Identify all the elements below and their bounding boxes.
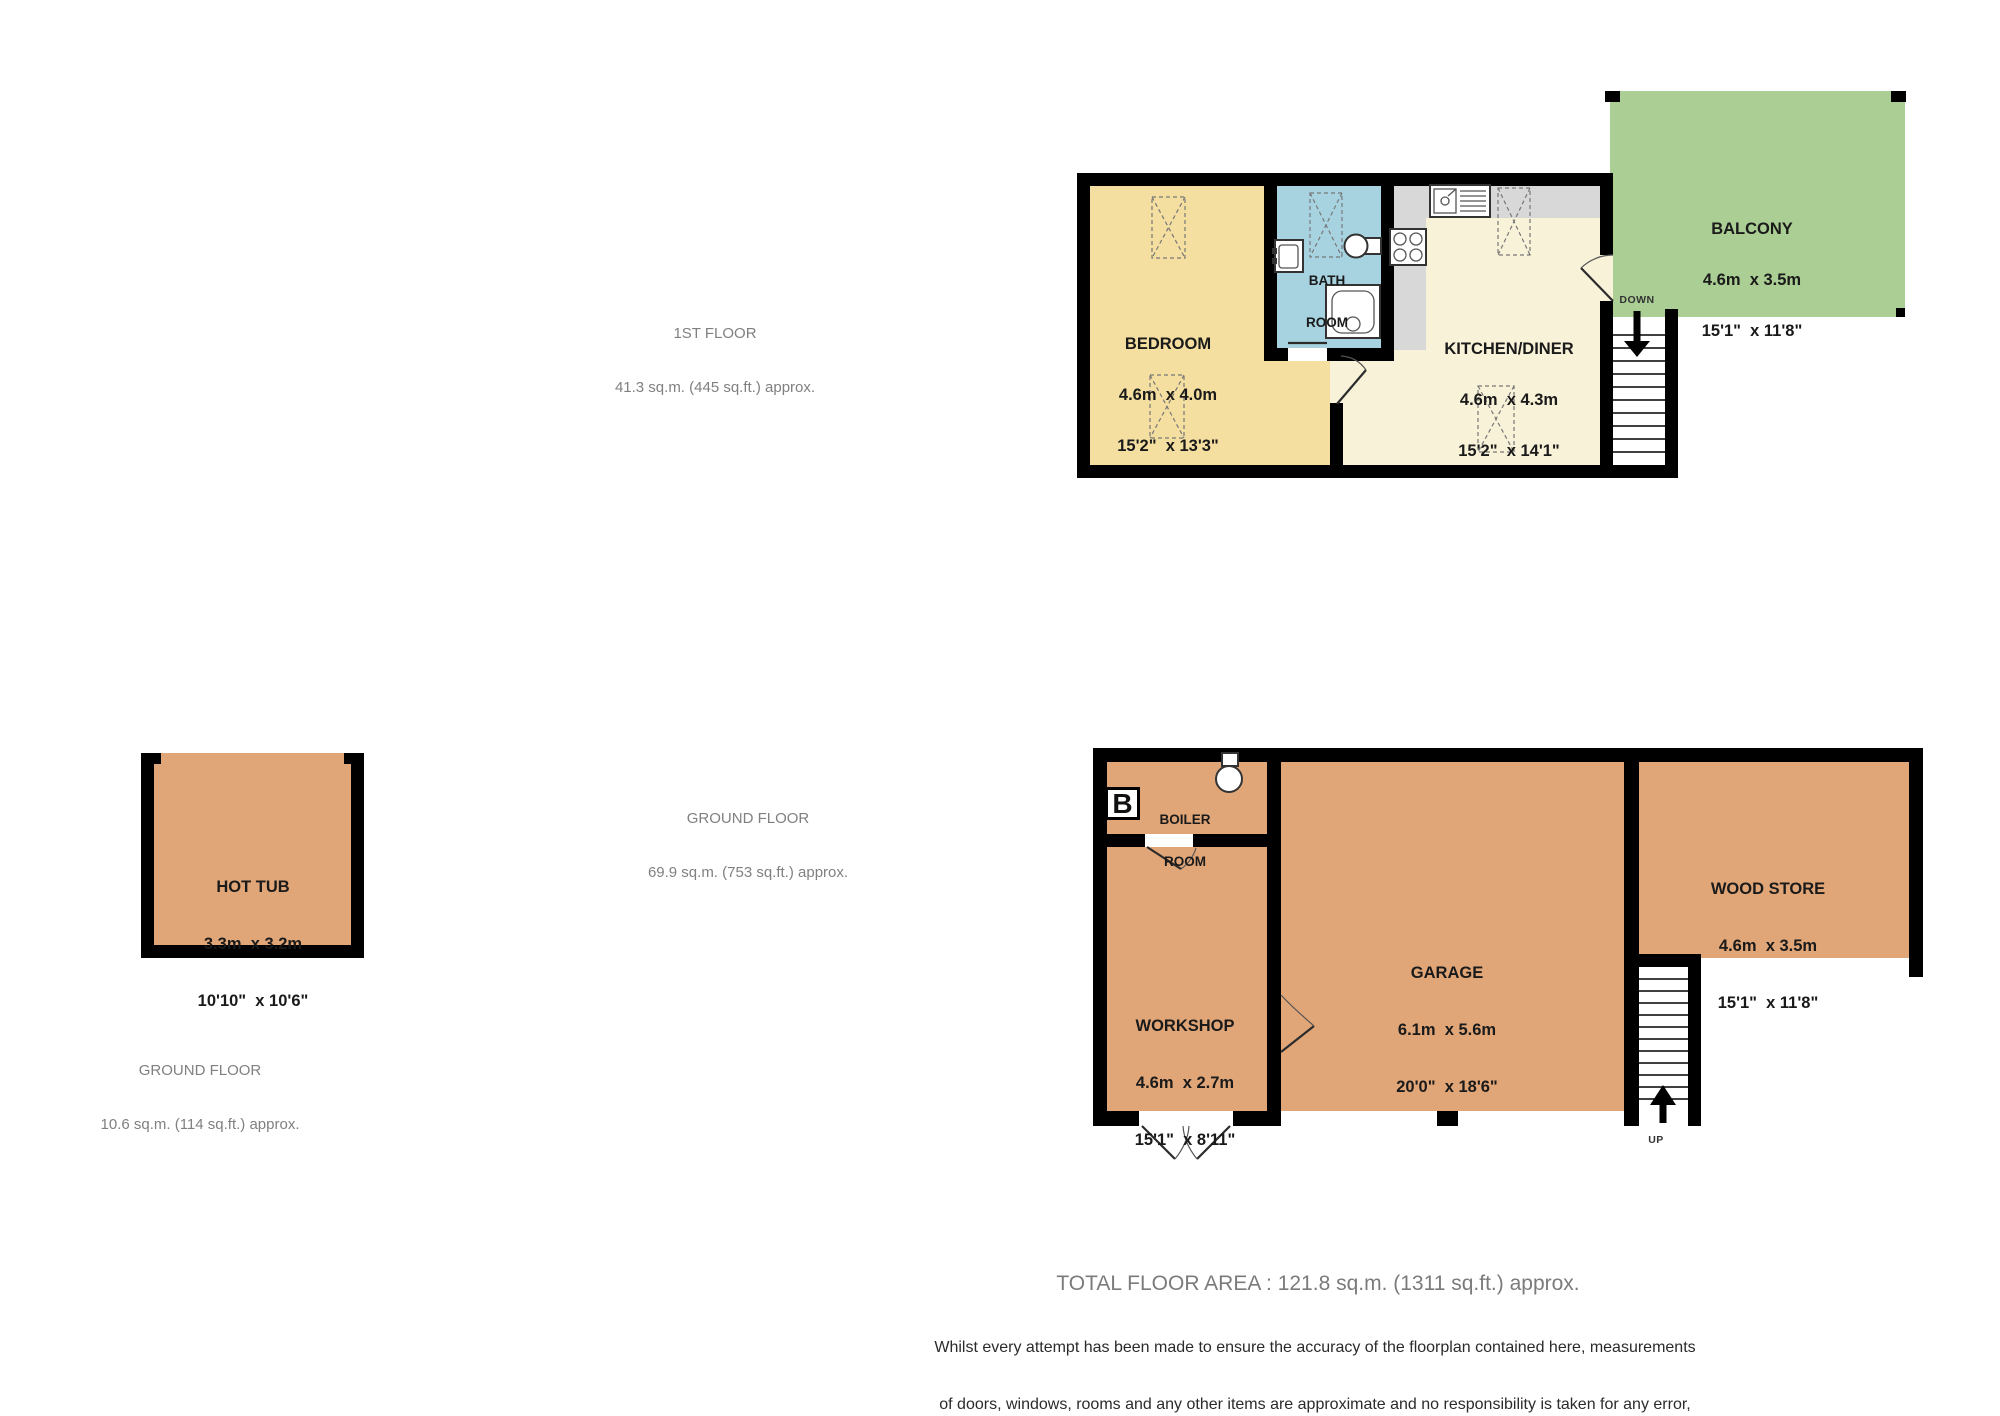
hot-tub-area-title: GROUND FLOOR bbox=[101, 1062, 300, 1080]
wood-store-label: WOOD STORE 4.6m x 3.5m 15'1" x 11'8" bbox=[1711, 842, 1825, 1051]
balcony-dims-metric: 4.6m x 3.5m bbox=[1702, 272, 1803, 289]
garage-dims-imperial: 20'0" x 18'6" bbox=[1396, 1078, 1497, 1097]
boiler-room-name-line1: BOILER bbox=[1159, 813, 1210, 827]
garage-label: GARAGE 6.1m x 5.6m 20'0" x 18'6" bbox=[1396, 926, 1497, 1135]
hot-tub-area-value: 10.6 sq.m. (114 sq.ft.) approx. bbox=[101, 1116, 300, 1134]
stairs-down bbox=[1613, 311, 1665, 465]
hot-tub-label: HOT TUB 3.3m x 3.2m 10'10" x 10'6" bbox=[198, 840, 309, 1049]
balcony-corner-mark bbox=[1891, 91, 1906, 102]
boiler-room-name-line2: ROOM bbox=[1159, 855, 1210, 869]
first-floor-area-title: 1ST FLOOR bbox=[615, 325, 815, 343]
disclaimer-line: of doors, windows, rooms and any other i… bbox=[930, 1395, 1700, 1414]
hot-tub-area-label: GROUND FLOOR 10.6 sq.m. (114 sq.ft.) app… bbox=[101, 1026, 300, 1170]
stairs-up-label: UP bbox=[1648, 1134, 1664, 1146]
wood-store-dims-imperial: 15'1" x 11'8" bbox=[1711, 994, 1825, 1013]
hot-tub-name: HOT TUB bbox=[198, 878, 309, 897]
balcony-corner-mark bbox=[1896, 308, 1905, 317]
floorplan-page: 1ST FLOOR 41.3 sq.m. (445 sq.ft.) approx… bbox=[0, 0, 2000, 1416]
first-floor-area-value: 41.3 sq.m. (445 sq.ft.) approx. bbox=[615, 379, 815, 397]
ground-floor-area-title: GROUND FLOOR bbox=[648, 810, 848, 828]
balcony-dims-imperial: 15'1" x 11'8" bbox=[1702, 323, 1803, 340]
stove-icon bbox=[1390, 229, 1426, 265]
ground-floor-area-value: 69.9 sq.m. (753 sq.ft.) approx. bbox=[648, 864, 848, 882]
stairs-down-label: DOWN bbox=[1619, 294, 1654, 306]
disclaimer-text: Whilst every attempt has been made to en… bbox=[930, 1300, 1700, 1416]
bathroom-sink-icon bbox=[1272, 240, 1303, 272]
wood-store-dims-metric: 4.6m x 3.5m bbox=[1711, 937, 1825, 956]
hot-tub-dims-metric: 3.3m x 3.2m bbox=[198, 935, 309, 954]
workshop-dims-metric: 4.6m x 2.7m bbox=[1135, 1074, 1236, 1093]
kitchen-sink-icon bbox=[1430, 185, 1490, 217]
balcony-corner-mark bbox=[1605, 91, 1620, 102]
kitchen-dims-metric: 4.6m x 4.3m bbox=[1444, 392, 1573, 409]
balcony-label: BALCONY 4.6m x 3.5m 15'1" x 11'8" bbox=[1702, 187, 1803, 374]
kitchen-label: KITCHEN/DINER 4.6m x 4.3m 15'2" x 14'1" bbox=[1444, 307, 1573, 494]
wood-store-name: WOOD STORE bbox=[1711, 880, 1825, 899]
boiler-room-label: BOILER ROOM bbox=[1159, 785, 1210, 897]
garage-dims-metric: 6.1m x 5.6m bbox=[1396, 1021, 1497, 1040]
basin-icon bbox=[1345, 235, 1382, 258]
bathroom-label: BATH ROOM bbox=[1306, 246, 1348, 358]
disclaimer-line: Whilst every attempt has been made to en… bbox=[930, 1338, 1700, 1357]
workshop-name: WORKSHOP bbox=[1135, 1017, 1236, 1036]
garage-name: GARAGE bbox=[1396, 964, 1497, 983]
bathroom-name-line2: ROOM bbox=[1306, 316, 1348, 330]
workshop-dims-imperial: 15'1" x 8'11" bbox=[1135, 1131, 1236, 1150]
total-floor-area: TOTAL FLOOR AREA : 121.8 sq.m. (1311 sq.… bbox=[1056, 1272, 1579, 1296]
first-floor-area-label: 1ST FLOOR 41.3 sq.m. (445 sq.ft.) approx… bbox=[615, 289, 815, 433]
bedroom-label: BEDROOM 4.6m x 4.0m 15'2" x 13'3" bbox=[1117, 302, 1218, 489]
bedroom-dims-imperial: 15'2" x 13'3" bbox=[1117, 438, 1218, 455]
hot-tub-dims-imperial: 10'10" x 10'6" bbox=[198, 992, 309, 1011]
balcony-name: BALCONY bbox=[1702, 221, 1803, 238]
bedroom-name: BEDROOM bbox=[1117, 336, 1218, 353]
workshop-label: WORKSHOP 4.6m x 2.7m 15'1" x 8'11" bbox=[1135, 979, 1236, 1188]
bedroom-dims-metric: 4.6m x 4.0m bbox=[1117, 387, 1218, 404]
ground-floor-area-label: GROUND FLOOR 69.9 sq.m. (753 sq.ft.) app… bbox=[648, 774, 848, 918]
kitchen-dims-imperial: 15'2" x 14'1" bbox=[1444, 443, 1573, 460]
floorplan-drawing bbox=[0, 0, 2000, 1416]
bathroom-name-line1: BATH bbox=[1306, 274, 1348, 288]
stairs-up bbox=[1639, 967, 1688, 1123]
kitchen-name: KITCHEN/DINER bbox=[1444, 341, 1573, 358]
boiler-symbol: B bbox=[1105, 787, 1140, 820]
